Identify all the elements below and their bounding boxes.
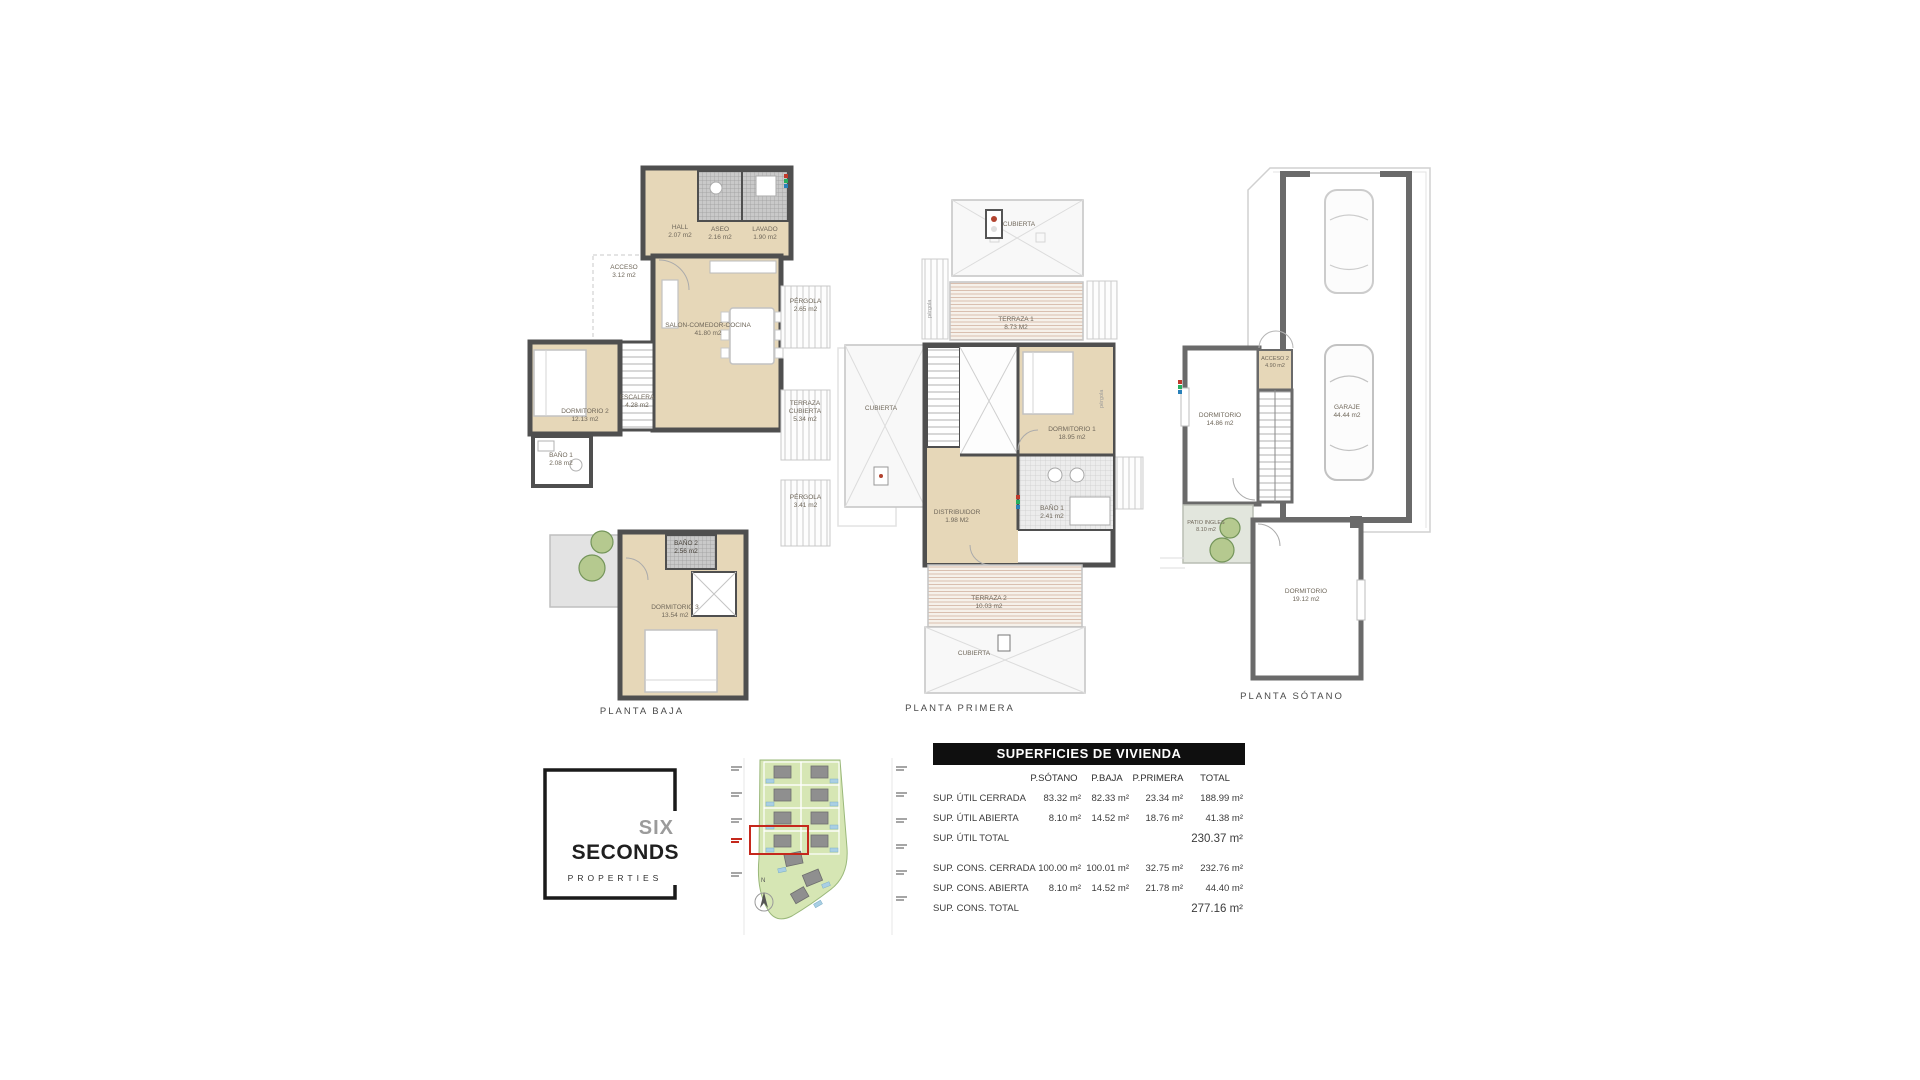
room-label-terraza1: TERRAZA 18.73 M2	[984, 316, 1048, 332]
sink	[1070, 468, 1084, 482]
planta-baja-drawing	[430, 160, 900, 720]
room-label-pergola2: PÉRGOLA3.41 m2	[782, 494, 829, 510]
floorplan-sheet: HALL2.07 m2 ASEO2.16 m2 LAVADO1.90 m2 AC…	[0, 0, 1920, 1080]
parcel-tag	[731, 818, 742, 824]
room-label-acceso: ACCESO3.12 m2	[594, 264, 654, 280]
distribuidor-room	[927, 447, 1018, 563]
cell: 32.75 m²	[1131, 859, 1185, 879]
hatch-marker	[1350, 516, 1362, 528]
col-spacer	[933, 765, 1025, 789]
room-label-salon: SALON-COMEDOR-COCINA41.80 m2	[654, 322, 762, 338]
col-pprimera: P.PRIMERA	[1131, 765, 1185, 789]
kitchen-counter	[710, 261, 776, 273]
cell: 21.78 m²	[1131, 879, 1185, 899]
cell	[1131, 899, 1185, 919]
cell: 82.33 m²	[1083, 789, 1131, 809]
room-label-garaje: GARAJE44.44 m2	[1316, 404, 1378, 420]
cell: 83.32 m²	[1025, 789, 1083, 809]
parcel-tag	[896, 870, 907, 876]
cell	[1131, 829, 1185, 849]
room-label-aseo: ASEO2.16 m2	[698, 226, 742, 242]
room-label-bano2: BAÑO 22.56 m2	[658, 540, 714, 556]
logo-word-six: SIX	[542, 817, 674, 840]
areas-table-header-row: P.SÓTANO P.BAJA P.PRIMERA TOTAL	[933, 765, 1245, 789]
chimney	[998, 635, 1010, 651]
room-label-bano1: BAÑO 12.08 m2	[536, 452, 586, 468]
room-label-pergola-left: pérgola	[927, 278, 933, 318]
room-label-dormitorio-b: DORMITORIO19.12 m2	[1274, 588, 1338, 604]
caption-planta-baja: PLANTA BAJA	[592, 706, 692, 717]
room-label-pergola-right: pérgola	[1099, 368, 1105, 408]
room-label-dormitorio1: DORMITORIO 118.95 m2	[1034, 426, 1110, 442]
pergola-strip-left	[922, 259, 948, 339]
sink	[538, 441, 554, 451]
parcel-tag	[896, 792, 907, 798]
bed	[645, 630, 717, 692]
table-row: SUP. ÚTIL CERRADA 83.32 m² 82.33 m² 23.3…	[933, 789, 1245, 809]
table-row: SUP. ÚTIL ABIERTA 8.10 m² 14.52 m² 18.76…	[933, 809, 1245, 829]
bed	[534, 350, 586, 416]
room-label-dormitorio3: DORMITORIO 313.54 m2	[634, 604, 716, 620]
room-label-escalera: ESCALERA4.28 m2	[614, 394, 660, 410]
parcel-tag	[731, 872, 742, 878]
row-label: SUP. ÚTIL ABIERTA	[933, 809, 1025, 829]
cell	[1025, 829, 1083, 849]
room-label-dormitorio-a: DORMITORIO14.86 m2	[1188, 412, 1252, 428]
row-label: SUP. CONS. TOTAL	[933, 899, 1025, 919]
caption-planta-sotano: PLANTA SÓTANO	[1237, 691, 1347, 702]
row-label: SUP. CONS. CERRADA	[933, 859, 1025, 879]
cell: 44.40 m²	[1185, 879, 1245, 899]
table-row: SUP. ÚTIL TOTAL 230.37 m²	[933, 829, 1245, 849]
skylight-dot	[879, 474, 883, 478]
parcel-tag	[896, 818, 907, 824]
bed	[1023, 352, 1073, 414]
col-psotano: P.SÓTANO	[1025, 765, 1083, 789]
room-label-cubierta-bottom: CUBIERTA	[944, 650, 1004, 658]
plan-planta-primera: CUBIERTA TERRAZA 18.73 M2 pérgola pérgol…	[840, 195, 1150, 725]
caption-planta-primera: PLANTA PRIMERA	[905, 703, 1015, 714]
col-total: TOTAL	[1185, 765, 1245, 789]
parcel-tag	[731, 766, 742, 772]
cell	[1083, 899, 1131, 919]
table-row: SUP. CONS. TOTAL 277.16 m²	[933, 899, 1245, 919]
chair	[721, 348, 729, 358]
garage-door-gap	[1310, 169, 1380, 179]
parcel-tag-highlighted	[731, 838, 742, 844]
cell-total: 230.37 m²	[1185, 829, 1245, 849]
row-label: SUP. ÚTIL CERRADA	[933, 789, 1025, 809]
cell: 18.76 m²	[1131, 809, 1185, 829]
table-row: SUP. CONS. ABIERTA 8.10 m² 14.52 m² 21.7…	[933, 879, 1245, 899]
logo-word-properties: PROPERTIES	[554, 873, 676, 883]
window	[1357, 580, 1365, 620]
cell: 14.52 m²	[1083, 809, 1131, 829]
legend-marks	[1178, 380, 1182, 395]
table-section-gap	[933, 849, 1245, 859]
room-label-terraza2: TERRAZA 210.03 m2	[956, 595, 1022, 611]
sink	[1048, 468, 1062, 482]
stairs	[927, 347, 960, 447]
areas-table-title: SUPERFICIES DE VIVIENDA	[933, 743, 1245, 765]
legend-marks	[1016, 495, 1020, 510]
plant	[1210, 538, 1234, 562]
table-row: SUP. CONS. CERRADA 100.00 m² 100.01 m² 3…	[933, 859, 1245, 879]
cell	[1083, 829, 1131, 849]
compass-north-label: N	[761, 878, 765, 884]
plan-planta-sotano: DORMITORIO14.86 m2 ACCESO 24.90 m2 GARAJ…	[1160, 160, 1460, 720]
areas-table: SUPERFICIES DE VIVIENDA P.SÓTANO P.BAJA …	[933, 743, 1245, 919]
pergola2-strip	[781, 480, 830, 546]
aseo-room	[698, 171, 742, 221]
car	[1325, 190, 1373, 293]
cell: 188.99 m²	[1185, 789, 1245, 809]
room-label-terraza-cubierta: TERRAZA CUBIERTA5.34 m2	[778, 400, 832, 424]
kitchen-island	[662, 280, 678, 328]
room-label-cubierta-left: CUBIERTA	[854, 405, 908, 413]
pergola-strip-right-top	[1087, 281, 1117, 339]
site-plan: N	[730, 750, 910, 945]
room-label-hall: HALL2.07 m2	[658, 224, 702, 240]
plant	[579, 555, 605, 581]
room-label-lavado: LAVADO1.90 m2	[742, 226, 788, 242]
cell: 8.10 m²	[1025, 879, 1083, 899]
planta-primera-drawing	[840, 195, 1150, 725]
washer	[756, 176, 776, 196]
parcel-tag	[896, 766, 907, 772]
sink	[710, 182, 722, 194]
parcel-tag	[896, 844, 907, 850]
six-seconds-logo: SIX SECONDS PROPERTIES	[542, 767, 682, 902]
room-label-pergola1: PÉRGOLA2.65 m2	[782, 298, 829, 314]
cell: 8.10 m²	[1025, 809, 1083, 829]
plan-planta-baja: HALL2.07 m2 ASEO2.16 m2 LAVADO1.90 m2 AC…	[430, 160, 900, 720]
pergola1-strip	[781, 286, 830, 348]
parcel-tag	[731, 792, 742, 798]
cell: 14.52 m²	[1083, 879, 1131, 899]
cell: 41.38 m²	[1185, 809, 1245, 829]
chair	[775, 348, 783, 358]
cell: 100.01 m²	[1083, 859, 1131, 879]
row-label: SUP. ÚTIL TOTAL	[933, 829, 1025, 849]
cell: 23.34 m²	[1131, 789, 1185, 809]
parcel-tag	[896, 896, 907, 902]
pergola-strip-right-bottom	[1115, 457, 1143, 509]
cell	[1025, 899, 1083, 919]
room-label-cubierta-top: CUBIERTA	[992, 221, 1046, 229]
room-label-dormitorio2: DORMITORIO 212.13 m2	[552, 408, 618, 424]
cell: 232.76 m²	[1185, 859, 1245, 879]
plant	[591, 531, 613, 553]
cell: 100.00 m²	[1025, 859, 1083, 879]
row-label: SUP. CONS. ABIERTA	[933, 879, 1025, 899]
room-label-acceso2: ACCESO 24.90 m2	[1255, 356, 1295, 370]
room-label-bano1-p1: BAÑO 12.41 m2	[1024, 505, 1080, 521]
col-pbaja: P.BAJA	[1083, 765, 1131, 789]
logo-word-seconds: SECONDS	[542, 841, 679, 865]
planta-sotano-drawing	[1160, 160, 1460, 720]
room-label-patio-ingles: PATIO INGLES8.10 m2	[1184, 520, 1228, 534]
chair	[721, 312, 729, 322]
cell-total: 277.16 m²	[1185, 899, 1245, 919]
site-plan-drawing	[730, 750, 910, 945]
legend-marks	[784, 174, 788, 189]
room-label-distribuidor: DISTRIBUIDOR1.98 M2	[922, 509, 992, 525]
stairs	[618, 342, 654, 430]
